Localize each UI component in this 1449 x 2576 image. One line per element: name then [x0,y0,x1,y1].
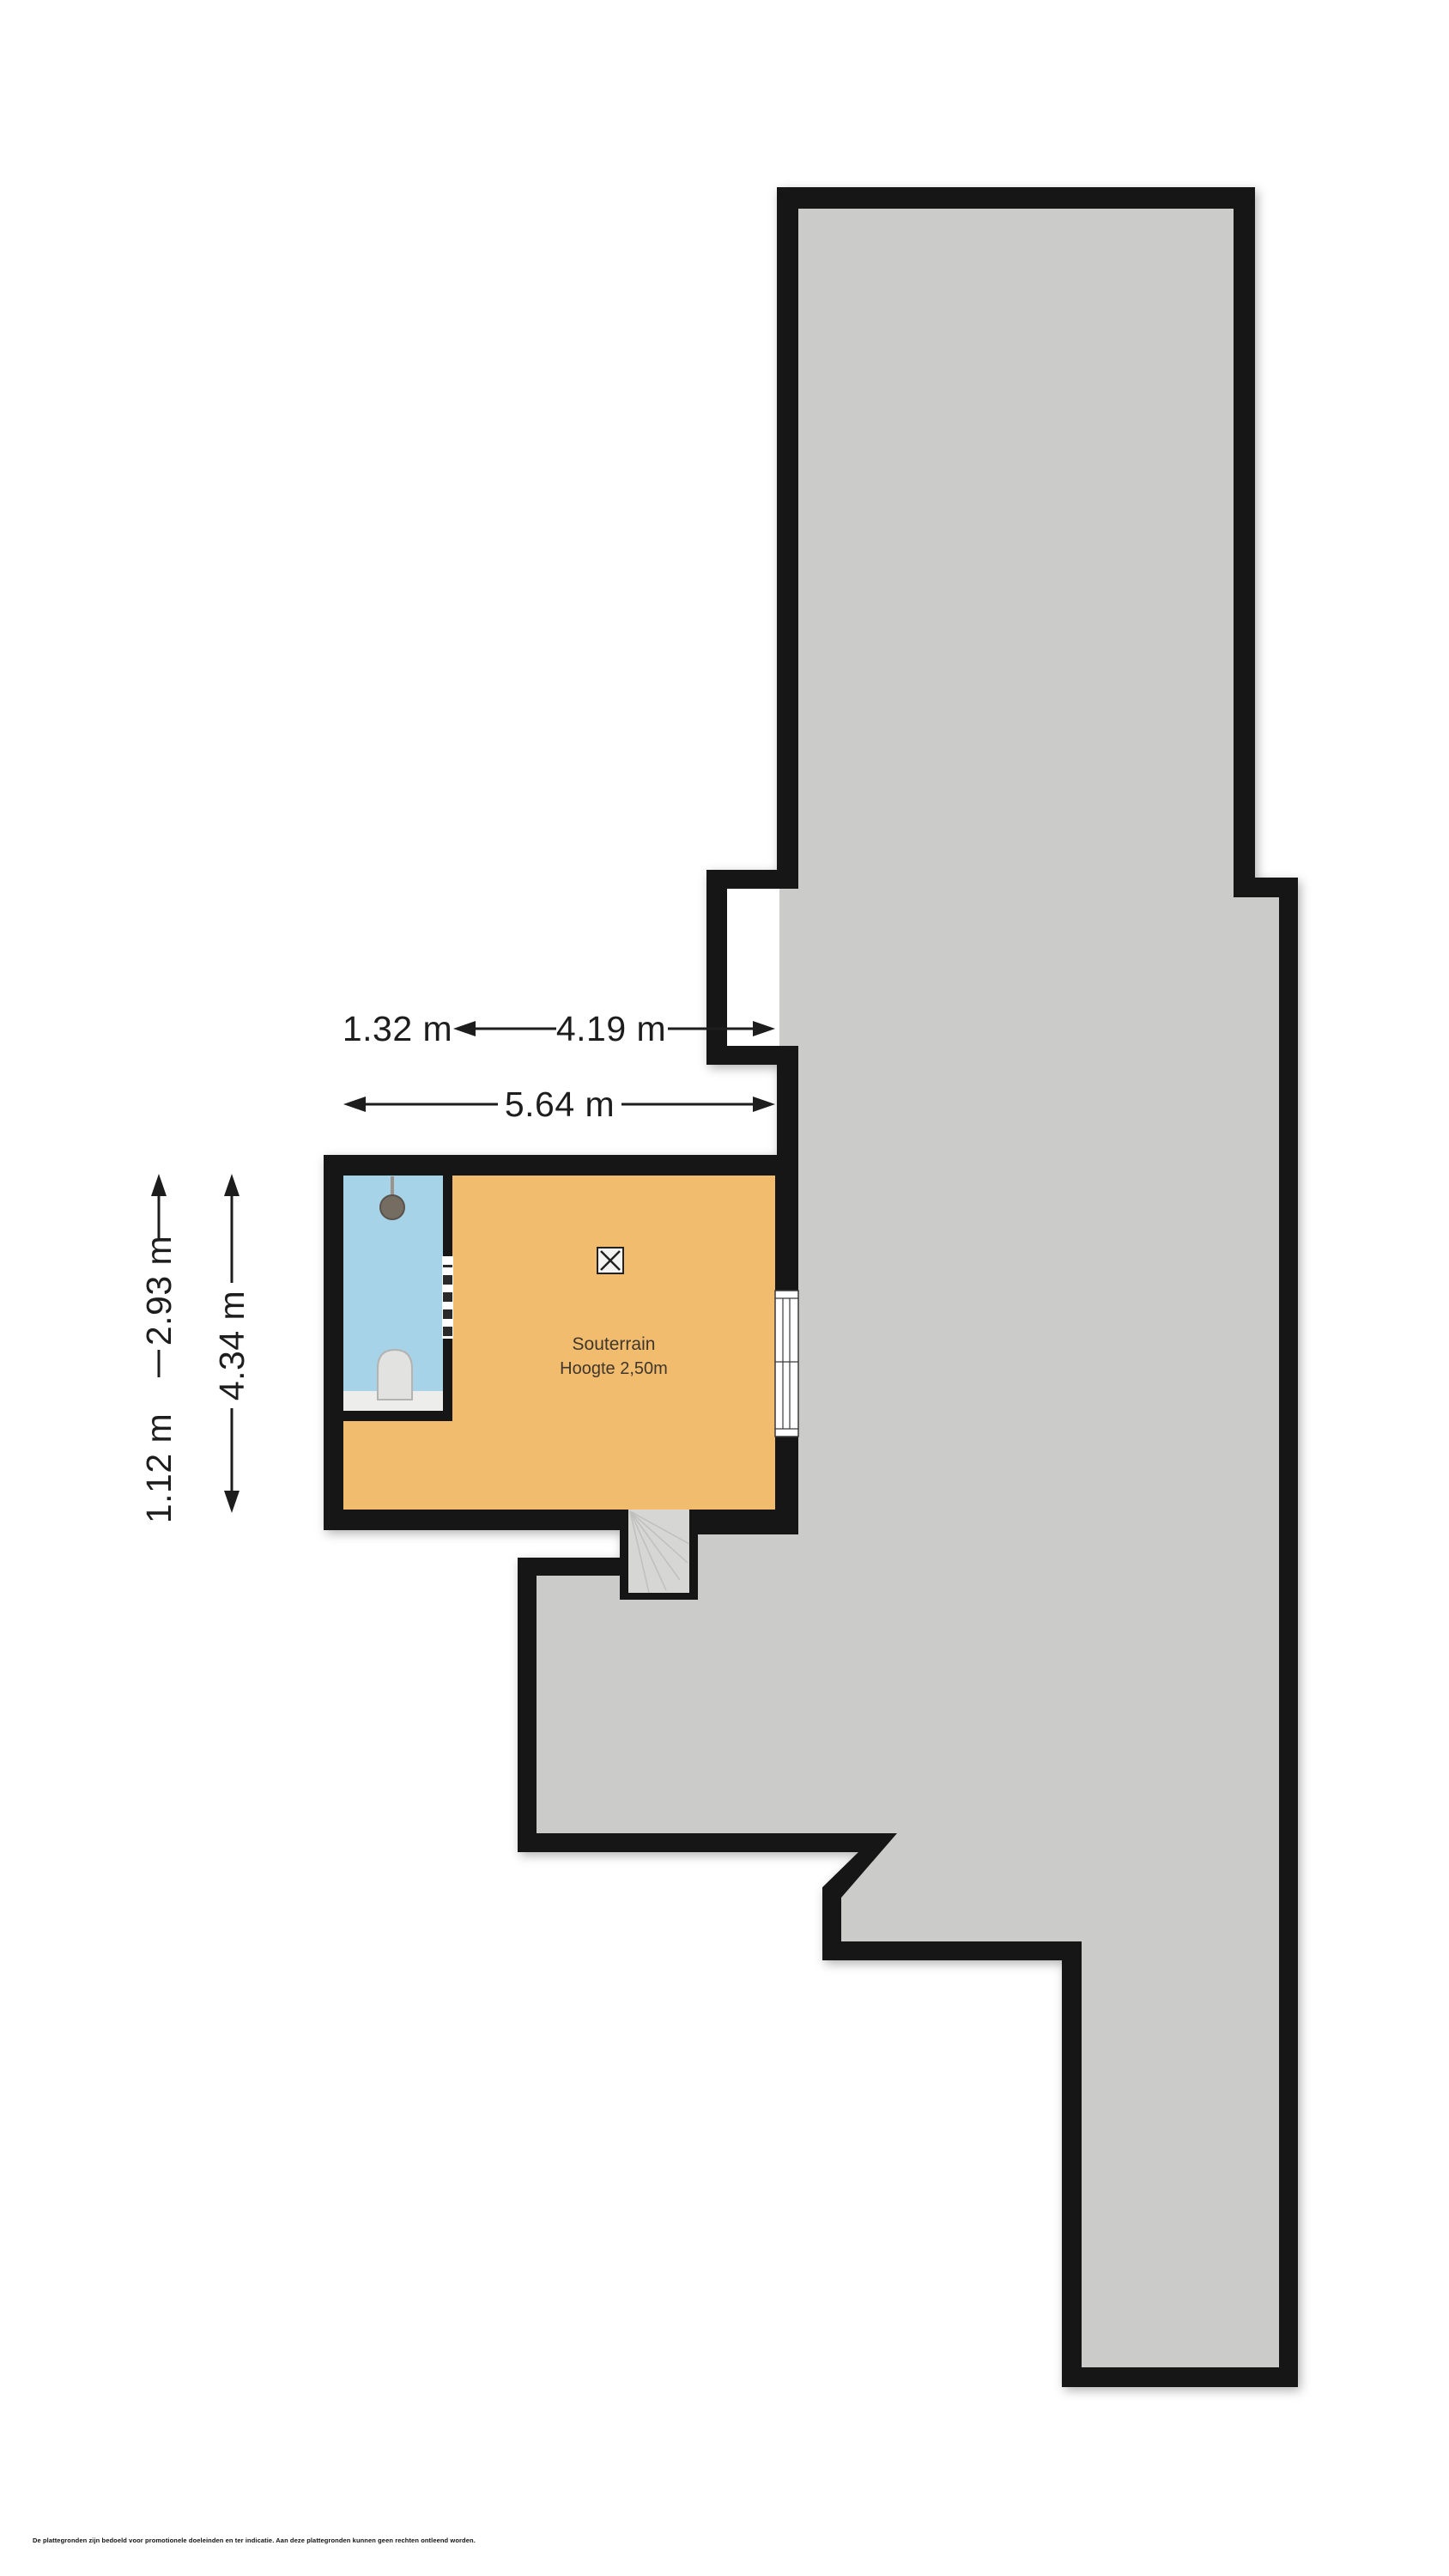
stairs [628,1510,689,1593]
dim-height-lower: 1.12 m [139,1413,179,1523]
floorplan-page: Souterrain Hoogte 2,50m 1.32 m 4.19 m 5.… [0,0,1449,2576]
dim-width-total: 5.64 m [505,1084,615,1124]
dim-width-room: 4.19 m [556,1009,666,1048]
toilet-icon [378,1350,412,1400]
dimension-height-total: 4.34 m [212,1174,252,1513]
light-point-icon [597,1248,623,1273]
dim-width-bathroom: 1.32 m [343,1009,452,1048]
window [775,1291,798,1437]
dim-height-bathroom: 2.93 m [139,1236,179,1346]
dim-height-total: 4.34 m [212,1291,252,1400]
dimension-height-segments: 2.93 m 1.12 m [139,1174,179,1523]
floor-plan-svg: Souterrain Hoogte 2,50m 1.32 m 4.19 m 5.… [0,0,1449,2576]
disclaimer-text: De plattegronden zijn bedoeld voor promo… [33,2537,476,2544]
dimension-width-total: 5.64 m [343,1084,775,1124]
room-height-label: Hoogte 2,50m [560,1359,668,1378]
room-name: Souterrain [573,1334,656,1354]
door-opening [442,1256,453,1339]
